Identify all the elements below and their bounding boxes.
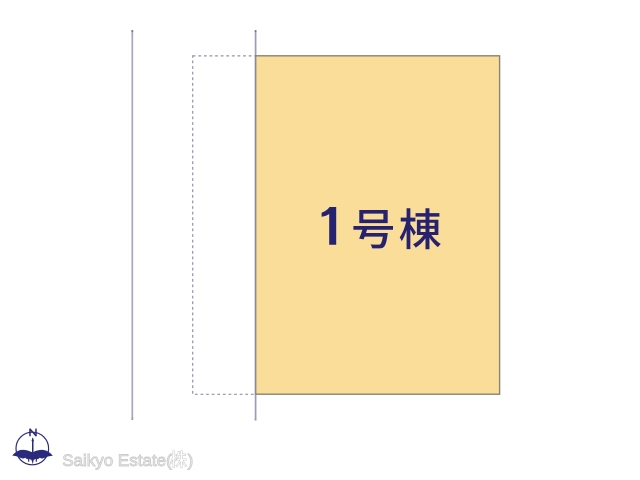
svg-text:): ) [188,451,194,470]
svg-text:Saikyo Estate(: Saikyo Estate( [62,451,172,470]
